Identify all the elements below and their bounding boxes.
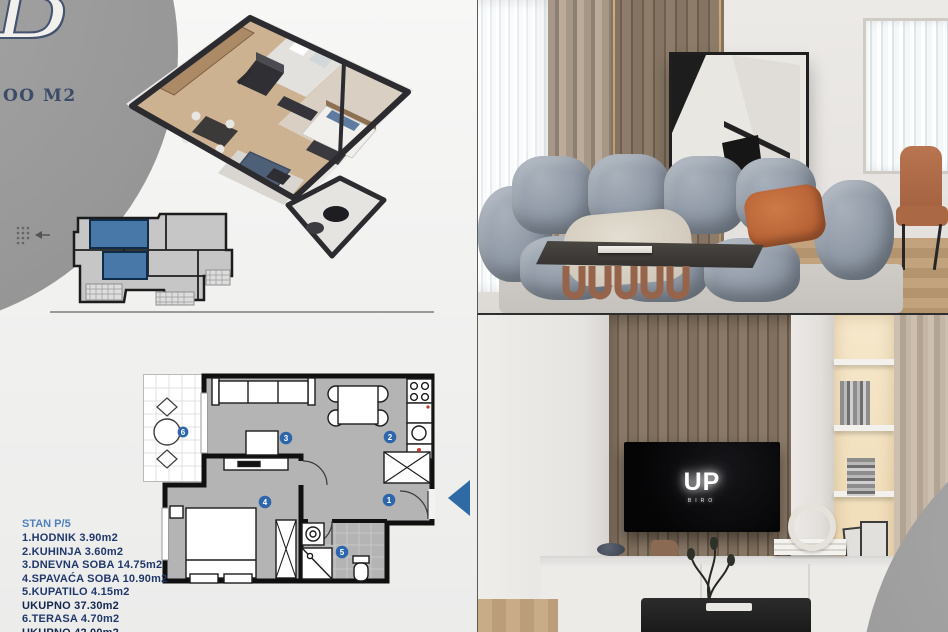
badge-4: 4	[263, 498, 268, 507]
terrace-table	[154, 419, 180, 445]
tv-logo-subtext: BIRO	[624, 498, 780, 504]
plant	[664, 537, 754, 601]
tv-wall-photo: UP BIRO	[477, 315, 948, 632]
highlighted-unit	[90, 220, 148, 248]
badge-6: 6	[181, 428, 186, 437]
badge-2: 2	[388, 433, 393, 442]
brand-letter: B	[0, 0, 73, 56]
bed-plan	[186, 508, 256, 578]
room-line: 2.KUHINJA 3.60m2	[22, 547, 167, 559]
room-line: 5.KUPATILO 4.15m2	[22, 587, 167, 599]
books	[840, 381, 870, 425]
total-line: UKUPNO 37.30m2	[22, 601, 167, 613]
room-line: 3.DNEVNA SOBA 14.75m2	[22, 560, 167, 572]
badge-5: 5	[340, 548, 345, 557]
unit-info-list: STAN P/5 1.HODNIK 3.90m2 2.KUHINJA 3.60m…	[22, 519, 167, 632]
badge-1: 1	[387, 496, 392, 505]
unit-label: STAN P/5	[22, 519, 167, 531]
tv-logo: UP	[624, 468, 780, 497]
building-key-plan	[8, 212, 240, 310]
white-tray	[706, 603, 752, 611]
toilet-plan	[354, 563, 368, 581]
picture-frame	[860, 521, 888, 559]
living-room-photo	[477, 0, 948, 315]
tv-screen: UP BIRO	[624, 442, 780, 532]
table-books	[598, 246, 652, 253]
highlighted-unit-terrace	[103, 252, 147, 279]
room-line: 1.HODNIK 3.90m2	[22, 533, 167, 545]
terrace-plan	[144, 375, 210, 482]
decor-bowl	[597, 543, 625, 556]
area-label: OO M2	[3, 86, 77, 106]
sofa-plan	[219, 381, 308, 403]
room-line: 6.TERASA 4.70m2	[22, 614, 167, 626]
dining-chair	[896, 146, 946, 270]
wood-floor	[478, 599, 558, 632]
shelf	[834, 425, 894, 431]
terrace-door	[201, 393, 208, 453]
coffee-table-plan	[246, 431, 278, 455]
brochure-page: B OO M2	[0, 0, 948, 632]
divider-line	[50, 311, 434, 313]
badge-3: 3	[284, 434, 289, 443]
entrance-arrow-icon	[448, 480, 470, 516]
left-arrow-icon	[35, 231, 42, 239]
left-panel: B OO M2	[0, 0, 477, 632]
floor-plan-2d: 1 2 3 4 5 6	[138, 366, 476, 606]
total-line: UKUPNO 42.00m2	[22, 628, 167, 632]
room-line: 4.SPAVAĆA SOBA 10.90m2	[22, 574, 167, 586]
dining-table-plan	[338, 386, 378, 424]
ring-sculpture	[788, 503, 836, 551]
orientation-marker	[17, 227, 50, 245]
terrace-table-iso	[323, 206, 349, 222]
coffee-table-base	[556, 266, 706, 312]
stacked-magazines	[847, 458, 875, 496]
shelf	[834, 359, 894, 365]
